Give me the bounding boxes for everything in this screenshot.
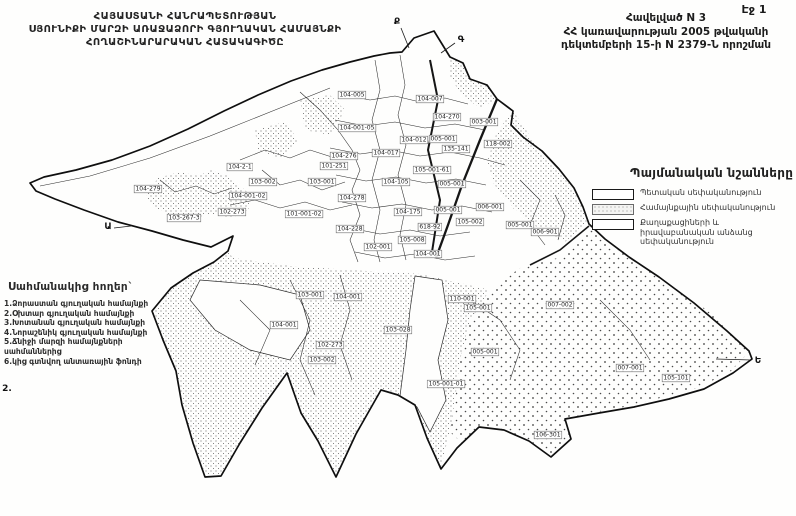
parcel-code-label: 104-001-02 <box>230 193 267 200</box>
parcel-code-label: 102-273 <box>218 209 245 216</box>
map-title-line3: ՀՈՂԱՇԻՆԱՐԱՐԱԿԱՆ ՀԱՏԱԿԱԳԻԾԸ <box>4 36 366 49</box>
parcel-code-label: 106-301 <box>534 432 561 439</box>
adjacent-land-item: 5.Ճնիջի մարզի համայնքների սահմաններից <box>4 337 182 356</box>
parcel-code-label: 104-105 <box>382 179 409 186</box>
legend: Պայմանական նշանները Պետական սեփականությո… <box>592 166 794 250</box>
parcel-code-label: 105-001 <box>464 305 491 312</box>
legend-title: Պայմանական նշանները <box>630 166 794 180</box>
adjacent-land-item: 6.կից գտնվող անտառային ֆոնդի <box>4 357 182 367</box>
parcel-code-label: 101-251 <box>320 163 347 170</box>
parcel-code-label: 005-001 <box>471 349 498 356</box>
boundary-mark: Ե <box>755 356 762 366</box>
parcel-code-label: 104-278 <box>338 195 365 202</box>
parcel-code-label: 104-175 <box>394 209 421 216</box>
parcel-code-label: 103-028 <box>384 327 411 334</box>
legend-item-community: Համայնքային սեփականություն <box>592 203 794 215</box>
parcel-code-label: 118-002 <box>484 141 511 148</box>
parcel-code-label: 101-001-02 <box>286 211 323 218</box>
legend-item-state: Պետական սեփականություն <box>592 188 794 200</box>
parcel-code-label: 110-001 <box>448 296 475 303</box>
adjacent-land-item: 3.Խոտանան գյուղական համայնքի <box>4 318 182 328</box>
parcel-code-label: 103-002 <box>308 357 335 364</box>
parcel-code-label: 007-002 <box>546 302 573 309</box>
boundary-mark: 2. <box>2 384 12 394</box>
parcel-code-label: 104-228 <box>336 226 363 233</box>
parcel-code-label: 103-001 <box>308 179 335 186</box>
legend-item-label: Պետական սեփականություն <box>640 188 761 198</box>
adjacent-lands-title: Սահմանակից հողեր` <box>8 281 182 293</box>
legend-item-label: Համայնքային սեփականություն <box>640 203 775 213</box>
map-title-line2: ՍՅՈՒՆԻՔԻ ՄԱՐԶԻ ԱՌԱՋԱՁՈՐԻ ԳՅՈՒՂԱԿԱՆ ՀԱՄԱՅ… <box>4 23 366 36</box>
parcel-code-label: 005-001 <box>429 136 456 143</box>
parcel-code-label: 104-001 <box>270 322 297 329</box>
parcel-code-label: 003-001 <box>470 119 497 126</box>
parcel-code-label: 006-901 <box>531 229 558 236</box>
parcel-code-label: 105-001-61 <box>414 167 451 174</box>
adjacent-lands-list: 1.Ձորաստան գյուղական համայնքի2.Օխտար գյո… <box>4 299 182 366</box>
parcel-code-label: 007-001 <box>616 365 643 372</box>
adjacent-land-item: 1.Ձորաստան գյուղական համայնքի <box>4 299 182 309</box>
adjacent-land-item: 4.Նորաշենիկ գյուղական համայնքի <box>4 328 182 338</box>
parcel-code-label: 105-002 <box>456 219 483 226</box>
parcel-code-label: 104-276 <box>330 153 357 160</box>
state-property-swatch <box>592 189 634 200</box>
adjacent-lands: Սահմանակից հողեր` 1.Ձորաստան գյուղական հ… <box>4 281 182 366</box>
boundary-mark: Ա <box>104 222 111 232</box>
parcel-code-label: 104-007 <box>416 96 443 103</box>
annex-line1: Հավելված N 3 <box>540 12 792 26</box>
citizens-property-swatch <box>592 219 634 230</box>
parcel-code-label: 104-001 <box>414 251 441 258</box>
scanned-map-page: 104-005104-007104-270003-001104-001-0510… <box>0 0 796 516</box>
boundary-mark: Ք <box>394 17 400 27</box>
parcel-code-label: 135-141 <box>442 146 469 153</box>
parcel-code-label: 103-267-3 <box>167 215 200 222</box>
annex-reference: Հավելված N 3 ՀՀ կառավարության 2005 թվակա… <box>540 12 792 53</box>
parcel-code-label: 102-001 <box>364 244 391 251</box>
parcel-code-label: 104-017 <box>372 150 399 157</box>
parcel-code-label: 104-279 <box>134 186 161 193</box>
parcel-code-label: 105-008 <box>398 237 425 244</box>
parcel-code-label: 104-001 <box>334 294 361 301</box>
map-title: ՀԱՅԱՍՏԱՆԻ ՀԱՆՐԱՊԵՏՈՒԹՅԱՆ ՍՅՈՒՆԻՔԻ ՄԱՐԶԻ … <box>4 10 366 49</box>
community-property-swatch <box>592 204 634 215</box>
parcel-code-label: 103-002 <box>249 179 276 186</box>
parcel-code-label: 104-2-1 <box>227 164 252 171</box>
parcel-code-label: 005-001 <box>506 222 533 229</box>
legend-item-citizens: Քաղաքացիների և իրավաբանական անձանց սեփակ… <box>592 218 794 247</box>
annex-line3: դեկտեմբերի 15-ի N 2379-Ն որոշման <box>540 39 792 53</box>
parcel-code-label: 105-001-01 <box>428 381 465 388</box>
parcel-code-label: 618-92 <box>418 224 441 231</box>
map-title-line1: ՀԱՅԱՍՏԱՆԻ ՀԱՆՐԱՊԵՏՈՒԹՅԱՆ <box>4 10 366 23</box>
parcel-code-label: 005-001 <box>434 207 461 214</box>
adjacent-land-item: 2.Օխտար գյուղական համայնքի <box>4 309 182 319</box>
parcel-code-label: 105-101 <box>662 375 689 382</box>
parcel-code-label: 005-001 <box>438 181 465 188</box>
parcel-code-label: 104-012 <box>400 137 427 144</box>
boundary-mark: Գ <box>458 35 465 45</box>
parcel-code-label: 102-273 <box>316 342 343 349</box>
parcel-code-label: 104-270 <box>433 114 460 121</box>
parcel-labels-layer: 104-005104-007104-270003-001104-001-0510… <box>0 0 796 516</box>
parcel-code-label: 104-001-05 <box>339 125 376 132</box>
parcel-code-label: 104-005 <box>338 92 365 99</box>
parcel-code-label: 006-001 <box>476 204 503 211</box>
legend-item-label: Քաղաքացիների և իրավաբանական անձանց սեփակ… <box>640 218 794 247</box>
annex-line2: ՀՀ կառավարության 2005 թվականի <box>540 26 792 40</box>
parcel-code-label: 103-001 <box>296 292 323 299</box>
